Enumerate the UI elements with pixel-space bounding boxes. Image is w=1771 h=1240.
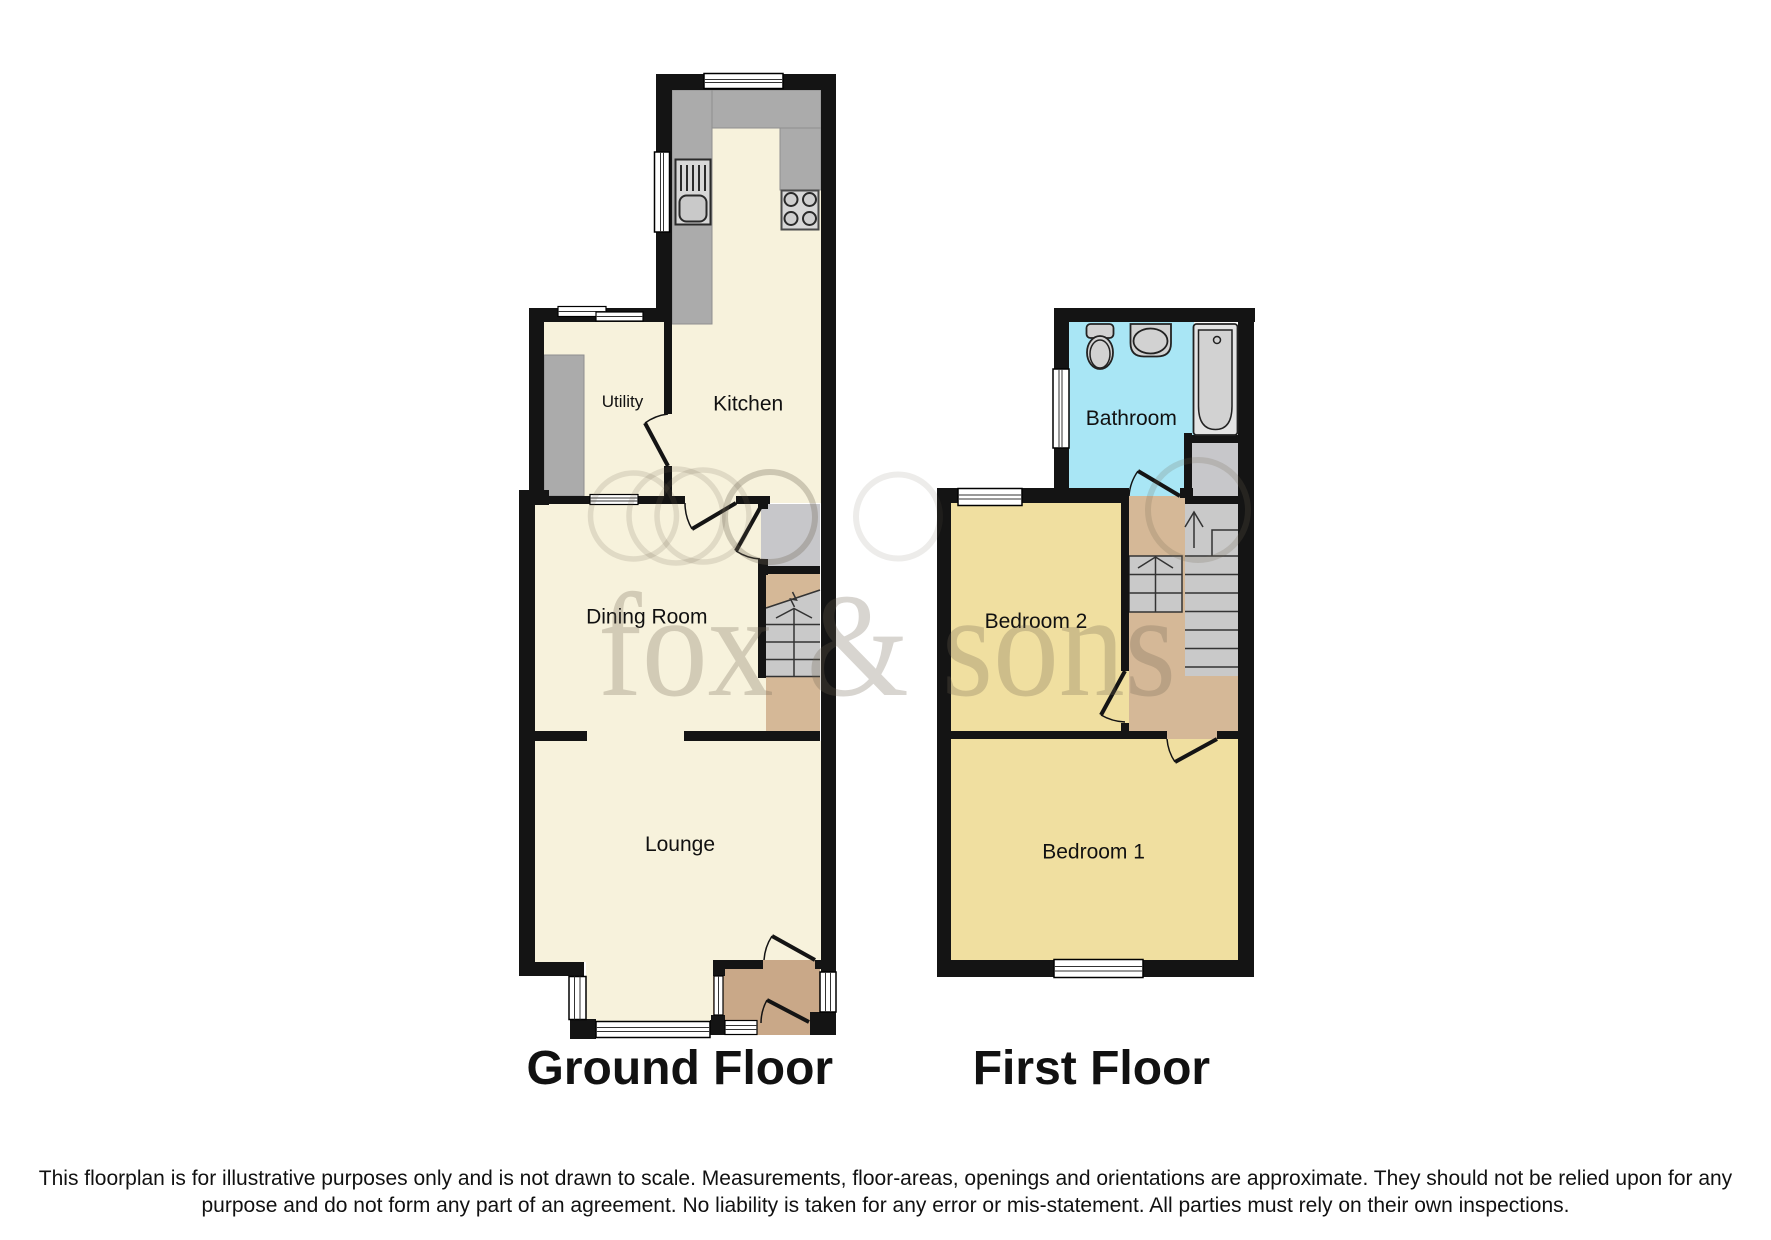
svg-text:This floorplan is for illustra: This floorplan is for illustrative purpo… <box>39 1167 1733 1190</box>
svg-text:Ground Floor: Ground Floor <box>526 1042 833 1095</box>
svg-text:Bedroom 1: Bedroom 1 <box>1042 841 1145 864</box>
svg-text:Kitchen: Kitchen <box>713 393 783 416</box>
svg-text:First Floor: First Floor <box>973 1042 1210 1095</box>
svg-text:fox & sons: fox & sons <box>598 564 1176 728</box>
svg-text:Lounge: Lounge <box>645 833 715 856</box>
svg-text:purpose and do not form any pa: purpose and do not form any part of an a… <box>202 1194 1570 1217</box>
svg-text:Bathroom: Bathroom <box>1086 407 1177 430</box>
svg-text:Utility: Utility <box>602 392 644 411</box>
